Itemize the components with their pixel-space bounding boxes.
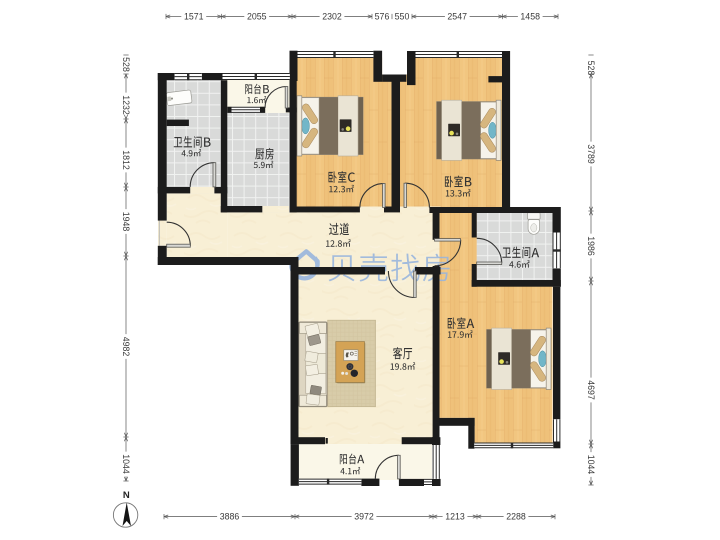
svg-text:550: 550 (395, 11, 410, 21)
svg-text:2547: 2547 (447, 11, 467, 21)
svg-text:3972: 3972 (354, 512, 374, 522)
svg-text:576: 576 (375, 11, 390, 21)
svg-text:1044: 1044 (121, 454, 131, 474)
svg-text:4697: 4697 (586, 380, 596, 400)
svg-text:3886: 3886 (220, 512, 240, 522)
svg-text:1213: 1213 (445, 512, 465, 522)
svg-text:528: 528 (121, 57, 131, 72)
svg-text:1986: 1986 (586, 236, 596, 256)
svg-text:1458: 1458 (520, 11, 540, 21)
svg-text:1812: 1812 (121, 150, 131, 170)
svg-text:528: 528 (586, 61, 596, 76)
svg-text:2055: 2055 (247, 11, 267, 21)
svg-text:2288: 2288 (506, 512, 526, 522)
svg-text:4982: 4982 (121, 337, 131, 357)
svg-text:1948: 1948 (121, 212, 131, 232)
svg-text:N: N (123, 490, 130, 501)
svg-text:3789: 3789 (586, 144, 596, 164)
svg-text:2302: 2302 (322, 11, 342, 21)
svg-text:1571: 1571 (184, 11, 204, 21)
svg-text:1232: 1232 (121, 95, 131, 115)
svg-text:1044: 1044 (586, 455, 596, 475)
